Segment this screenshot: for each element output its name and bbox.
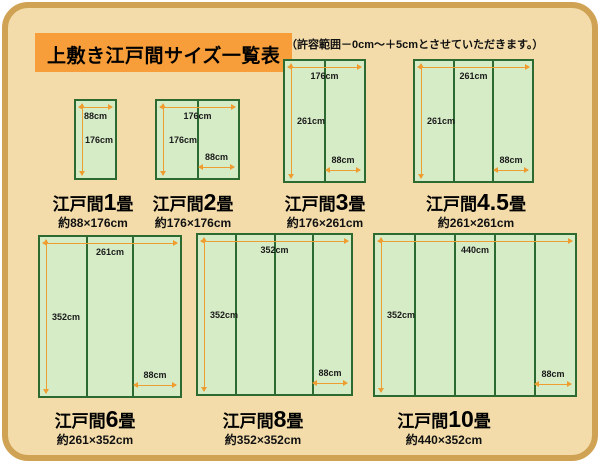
caption-title: 江戸間10畳: [374, 406, 514, 432]
caption-size: 約352×352cm: [193, 434, 333, 448]
width-dimension: 352cm: [198, 245, 351, 255]
height-arrow-icon: [204, 238, 205, 391]
size-chart-infographic: 上敷き江戸間サイズ一覧表 （許容範囲－0cm～＋5cmとさせていただきます。） …: [0, 0, 600, 463]
height-arrow-icon: [291, 64, 292, 178]
height-arrow-icon: [163, 104, 164, 175]
width-dimension: 261cm: [415, 71, 532, 81]
caption-title: 江戸間6畳: [25, 406, 165, 432]
mat-width-arrow-icon: [326, 170, 360, 171]
page-title: 上敷き江戸間サイズ一覧表: [35, 33, 292, 72]
mat-outline: 176cm 261cm 88cm: [283, 59, 366, 183]
caption-title: 江戸間3畳: [265, 189, 385, 215]
mat-outline: 88cm 176cm: [74, 99, 117, 180]
mat-outline: 261cm 261cm 88cm: [413, 59, 534, 183]
mat-outline: 440cm 352cm 88cm: [373, 233, 577, 397]
caption-title: 江戸間8畳: [193, 406, 333, 432]
diagram-caption: 江戸間6畳 約261×352cm: [25, 406, 165, 448]
mat-width-arrow-icon: [313, 383, 347, 384]
mat-width-dimension: 88cm: [326, 155, 360, 165]
height-dimension: 352cm: [52, 312, 80, 322]
mat-width-arrow-icon: [199, 167, 234, 168]
caption-title: 江戸間2畳: [133, 189, 253, 215]
height-arrow-icon: [381, 238, 382, 392]
diagram-caption: 江戸間8畳 約352×352cm: [193, 406, 333, 448]
mat-width-dimension: 88cm: [494, 155, 528, 165]
height-dimension: 176cm: [85, 135, 113, 145]
mat-divider: [494, 235, 496, 395]
height-dimension: 261cm: [297, 116, 325, 126]
caption-size: 約176×176cm: [133, 217, 253, 231]
mat-outline: 176cm 176cm 88cm: [155, 99, 240, 180]
caption-size: 約261×261cm: [406, 217, 546, 231]
mat-width-dimension: 88cm: [199, 152, 234, 162]
width-dimension: 176cm: [157, 111, 238, 121]
caption-size: 約261×352cm: [25, 434, 165, 448]
mat-outline: 352cm 352cm 88cm: [196, 233, 353, 396]
mat-width-dimension: 88cm: [313, 368, 347, 378]
mat-divider: [86, 237, 88, 396]
mat-width-dimension: 88cm: [535, 369, 571, 379]
mat-width-arrow-icon: [535, 384, 571, 385]
width-arrow-icon: [418, 67, 529, 68]
caption-size: 約440×352cm: [374, 434, 514, 448]
diagram-caption: 江戸間3畳 約176×261cm: [265, 189, 385, 231]
mat-divider: [274, 235, 276, 394]
width-arrow-icon: [378, 241, 572, 242]
height-arrow-icon: [421, 64, 422, 178]
diagram-caption: 江戸間2畳 約176×176cm: [133, 189, 253, 231]
mat-width-dimension: 88cm: [134, 370, 176, 380]
caption-title: 江戸間4.5畳: [406, 189, 546, 215]
tolerance-note: （許容範囲－0cm～＋5cmとさせていただきます。）: [286, 36, 543, 52]
height-dimension: 352cm: [210, 310, 238, 320]
height-arrow-icon: [82, 104, 83, 175]
diagram-caption: 江戸間4.5畳 約261×261cm: [406, 189, 546, 231]
mat-width-arrow-icon: [134, 385, 176, 386]
width-arrow-icon: [43, 243, 177, 244]
width-arrow-icon: [160, 107, 235, 108]
diagram-caption: 江戸間10畳 約440×352cm: [374, 406, 514, 448]
height-dimension: 176cm: [169, 135, 197, 145]
height-dimension: 352cm: [387, 310, 415, 320]
width-arrow-icon: [201, 241, 348, 242]
width-dimension: 261cm: [40, 247, 180, 257]
height-arrow-icon: [46, 240, 47, 393]
width-dimension: 176cm: [285, 71, 364, 81]
width-arrow-icon: [288, 67, 361, 68]
width-dimension: 440cm: [375, 245, 575, 255]
caption-size: 約176×261cm: [265, 217, 385, 231]
height-dimension: 261cm: [427, 116, 455, 126]
mat-divider: [454, 235, 456, 395]
mat-width-arrow-icon: [494, 170, 528, 171]
mat-outline: 261cm 352cm 88cm: [38, 235, 182, 398]
